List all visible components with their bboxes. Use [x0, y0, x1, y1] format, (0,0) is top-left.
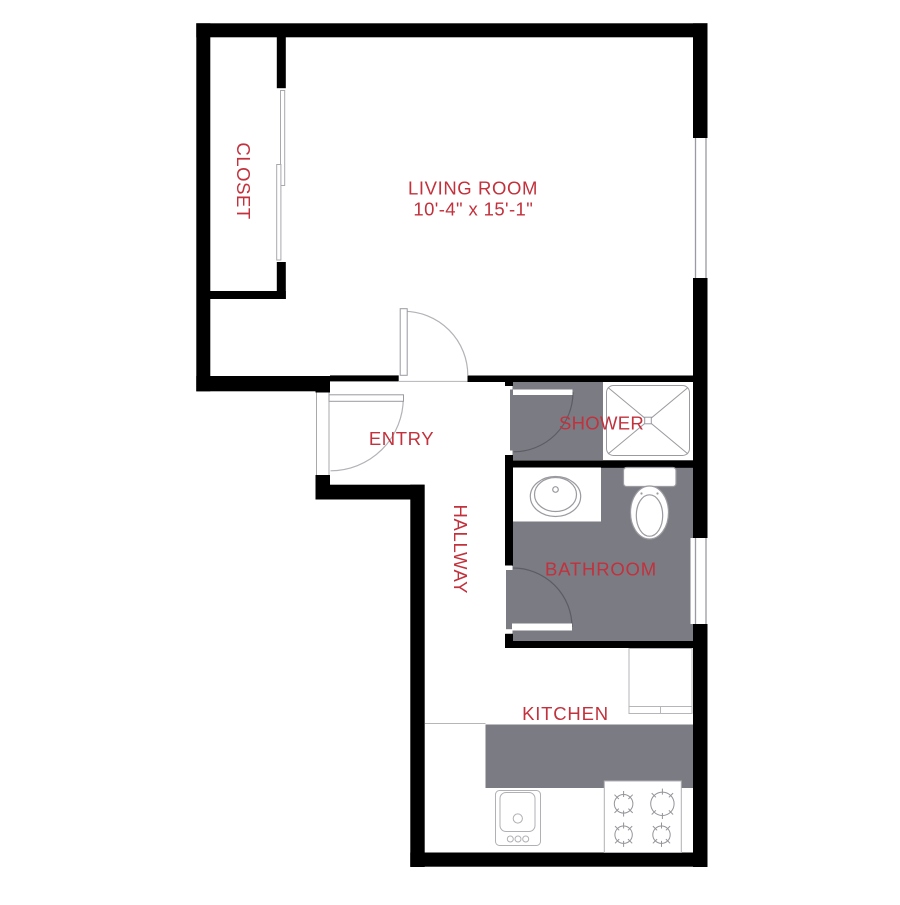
svg-text:KITCHEN: KITCHEN — [522, 703, 609, 724]
svg-text:HALLWAY: HALLWAY — [450, 505, 471, 595]
svg-text:10'-4" x 15'-1": 10'-4" x 15'-1" — [413, 198, 533, 219]
svg-text:ENTRY: ENTRY — [369, 428, 434, 449]
svg-text:SHOWER: SHOWER — [559, 413, 644, 434]
svg-text:LIVING ROOM: LIVING ROOM — [408, 178, 538, 199]
svg-text:CLOSET: CLOSET — [233, 142, 254, 219]
svg-text:BATHROOM: BATHROOM — [545, 558, 657, 579]
